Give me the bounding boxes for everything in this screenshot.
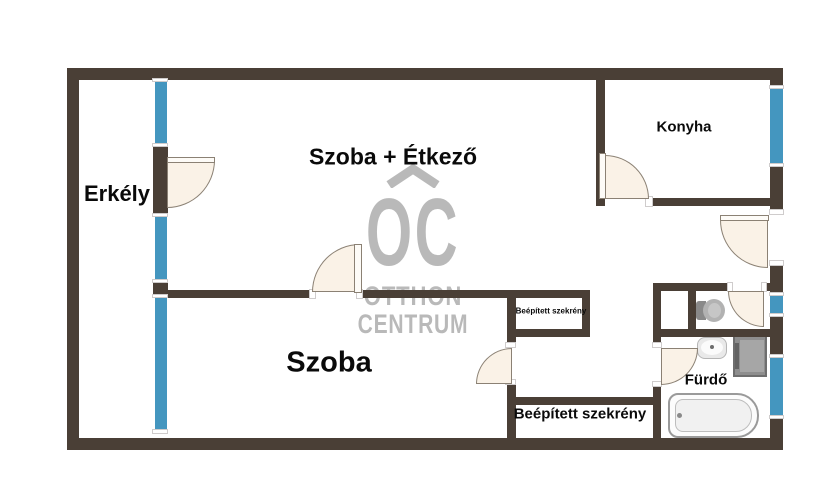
jamb [769,163,784,167]
jamb [152,294,168,298]
bathtub-faucet-icon [677,413,682,418]
jamb [769,415,784,419]
szoba-east-wall-upper [507,290,516,347]
outer-wall-top [67,68,783,80]
window-kitchen [770,89,783,167]
jamb [152,143,168,147]
window-balcony-upper [155,81,167,147]
jamb [152,78,168,82]
watermark-monogram: OC [365,196,459,271]
watermark-monogram-row: OC [0,196,825,271]
door-leaf-kitchen [599,153,606,199]
bath-block-left-wall-lower [653,384,661,438]
room-label-szoba-etkezo: Szoba + Étkező [309,144,477,171]
room-label-erkely: Erkély [84,181,150,207]
interior-wall-main-right [360,290,590,298]
wardrobe-top-wall [507,397,661,405]
outer-wall-right-2 [770,167,783,214]
jamb [769,292,784,296]
toilet-top-wall [653,283,730,291]
sink-drain-icon [710,345,714,349]
room-label-szoba: Szoba [286,347,371,380]
jamb [152,279,168,283]
door-leaf-living [354,244,362,293]
closet-bottom-wall [512,329,590,337]
jamb [769,260,784,266]
interior-wall-main-left [167,290,313,298]
toilet-closet-divider [688,291,696,329]
room-label-szekreny-small: Beépített szekrény [516,307,587,316]
room-label-szekreny-large: Beépített szekrény [514,406,647,423]
kitchen-bottom-wall [648,198,770,206]
jamb [769,313,784,317]
bathtub-inner [675,399,752,432]
outer-wall-right-4 [770,317,783,358]
outer-wall-bottom [67,438,783,450]
door-swing-szoba [476,348,512,384]
washing-machine-panel [735,343,739,369]
door-leaf-balcony [167,157,215,163]
window-balcony-lower [155,298,167,433]
floor-plan: OC OTTHON CENTRUM [0,0,825,500]
outer-wall-left [67,68,79,450]
outer-wall-right-5 [770,419,783,450]
jamb [152,213,168,217]
jamb [769,209,784,215]
window-bathroom [770,358,783,419]
bath-mid-wall [653,329,770,337]
balcony-door-post [153,147,168,217]
washing-machine-inner [740,340,764,372]
jamb [152,429,168,434]
window-balcony-middle [155,217,167,283]
jamb [769,354,784,358]
room-label-furdo: Fürdő [685,372,728,389]
room-label-konyha: Konyha [656,119,711,136]
watermark-line2: CENTRUM [357,311,468,338]
jamb [769,85,784,89]
bath-block-left-wall-upper [653,283,661,347]
door-leaf-entry [720,215,769,221]
toilet-bowl-inner [708,303,721,318]
